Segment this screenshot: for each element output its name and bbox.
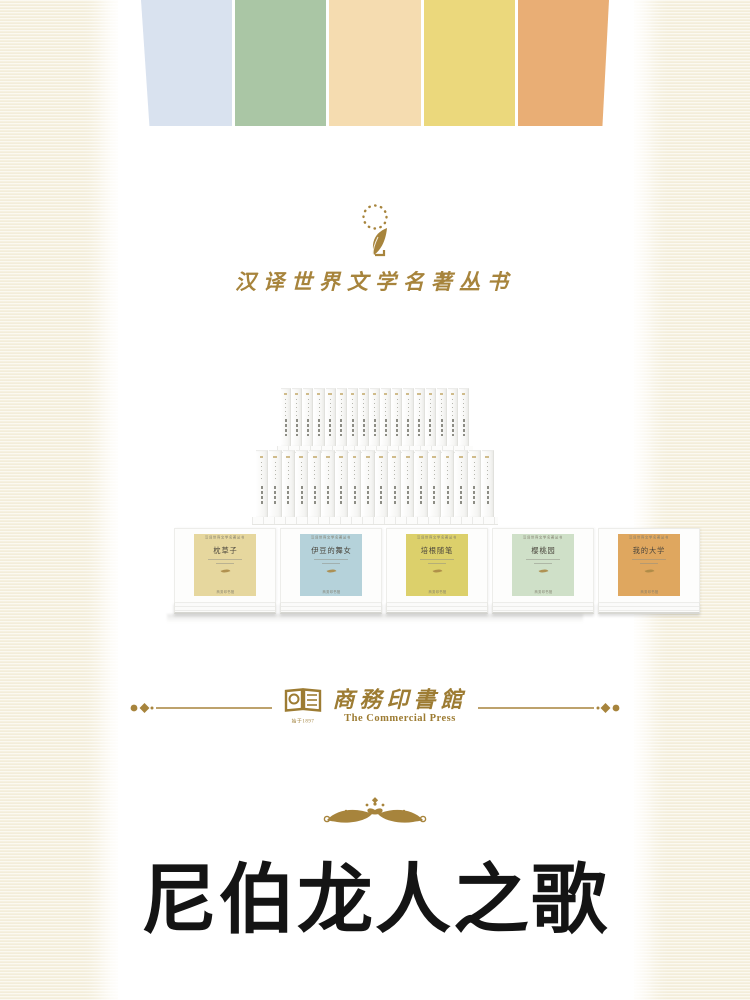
translator-line	[640, 563, 659, 564]
left-flourish-ornament	[130, 701, 272, 715]
publisher-row: 始于1897 商務印書館 The Commercial Press	[0, 688, 750, 727]
book-cover-poster: { "poster": { "background_color": "#f6f1…	[0, 0, 750, 1000]
white-center-panel	[118, 0, 634, 1000]
color-stripe	[141, 0, 232, 126]
series-title: 汉译世界文学名著丛书	[0, 266, 750, 296]
color-stripe	[235, 0, 326, 126]
author-line	[632, 559, 666, 560]
color-stripe	[518, 0, 609, 126]
commercial-press-logo: 始于1897 商務印書館 The Commercial Press	[282, 688, 467, 727]
gold-flourish-ornament	[320, 797, 430, 829]
cover-publisher-label: 商务印书馆	[640, 591, 658, 594]
open-book-icon: 始于1897	[282, 688, 324, 727]
cover-title: 我的大学	[633, 546, 665, 554]
publisher-name-en: The Commercial Press	[332, 712, 467, 725]
quill-in-dotted-circle-icon	[345, 203, 405, 261]
cover-series-label: 汉译世界文学名著丛书	[629, 536, 669, 539]
book-color-stripes	[141, 0, 609, 126]
right-flourish-ornament	[478, 701, 620, 715]
publisher-name-cn: 商務印書館	[332, 688, 467, 712]
feather-icon	[644, 567, 654, 574]
main-title: 尼伯龙人之歌	[0, 853, 750, 949]
color-stripe	[424, 0, 515, 126]
since-label: 始于1897	[291, 719, 316, 724]
color-stripe	[329, 0, 420, 126]
